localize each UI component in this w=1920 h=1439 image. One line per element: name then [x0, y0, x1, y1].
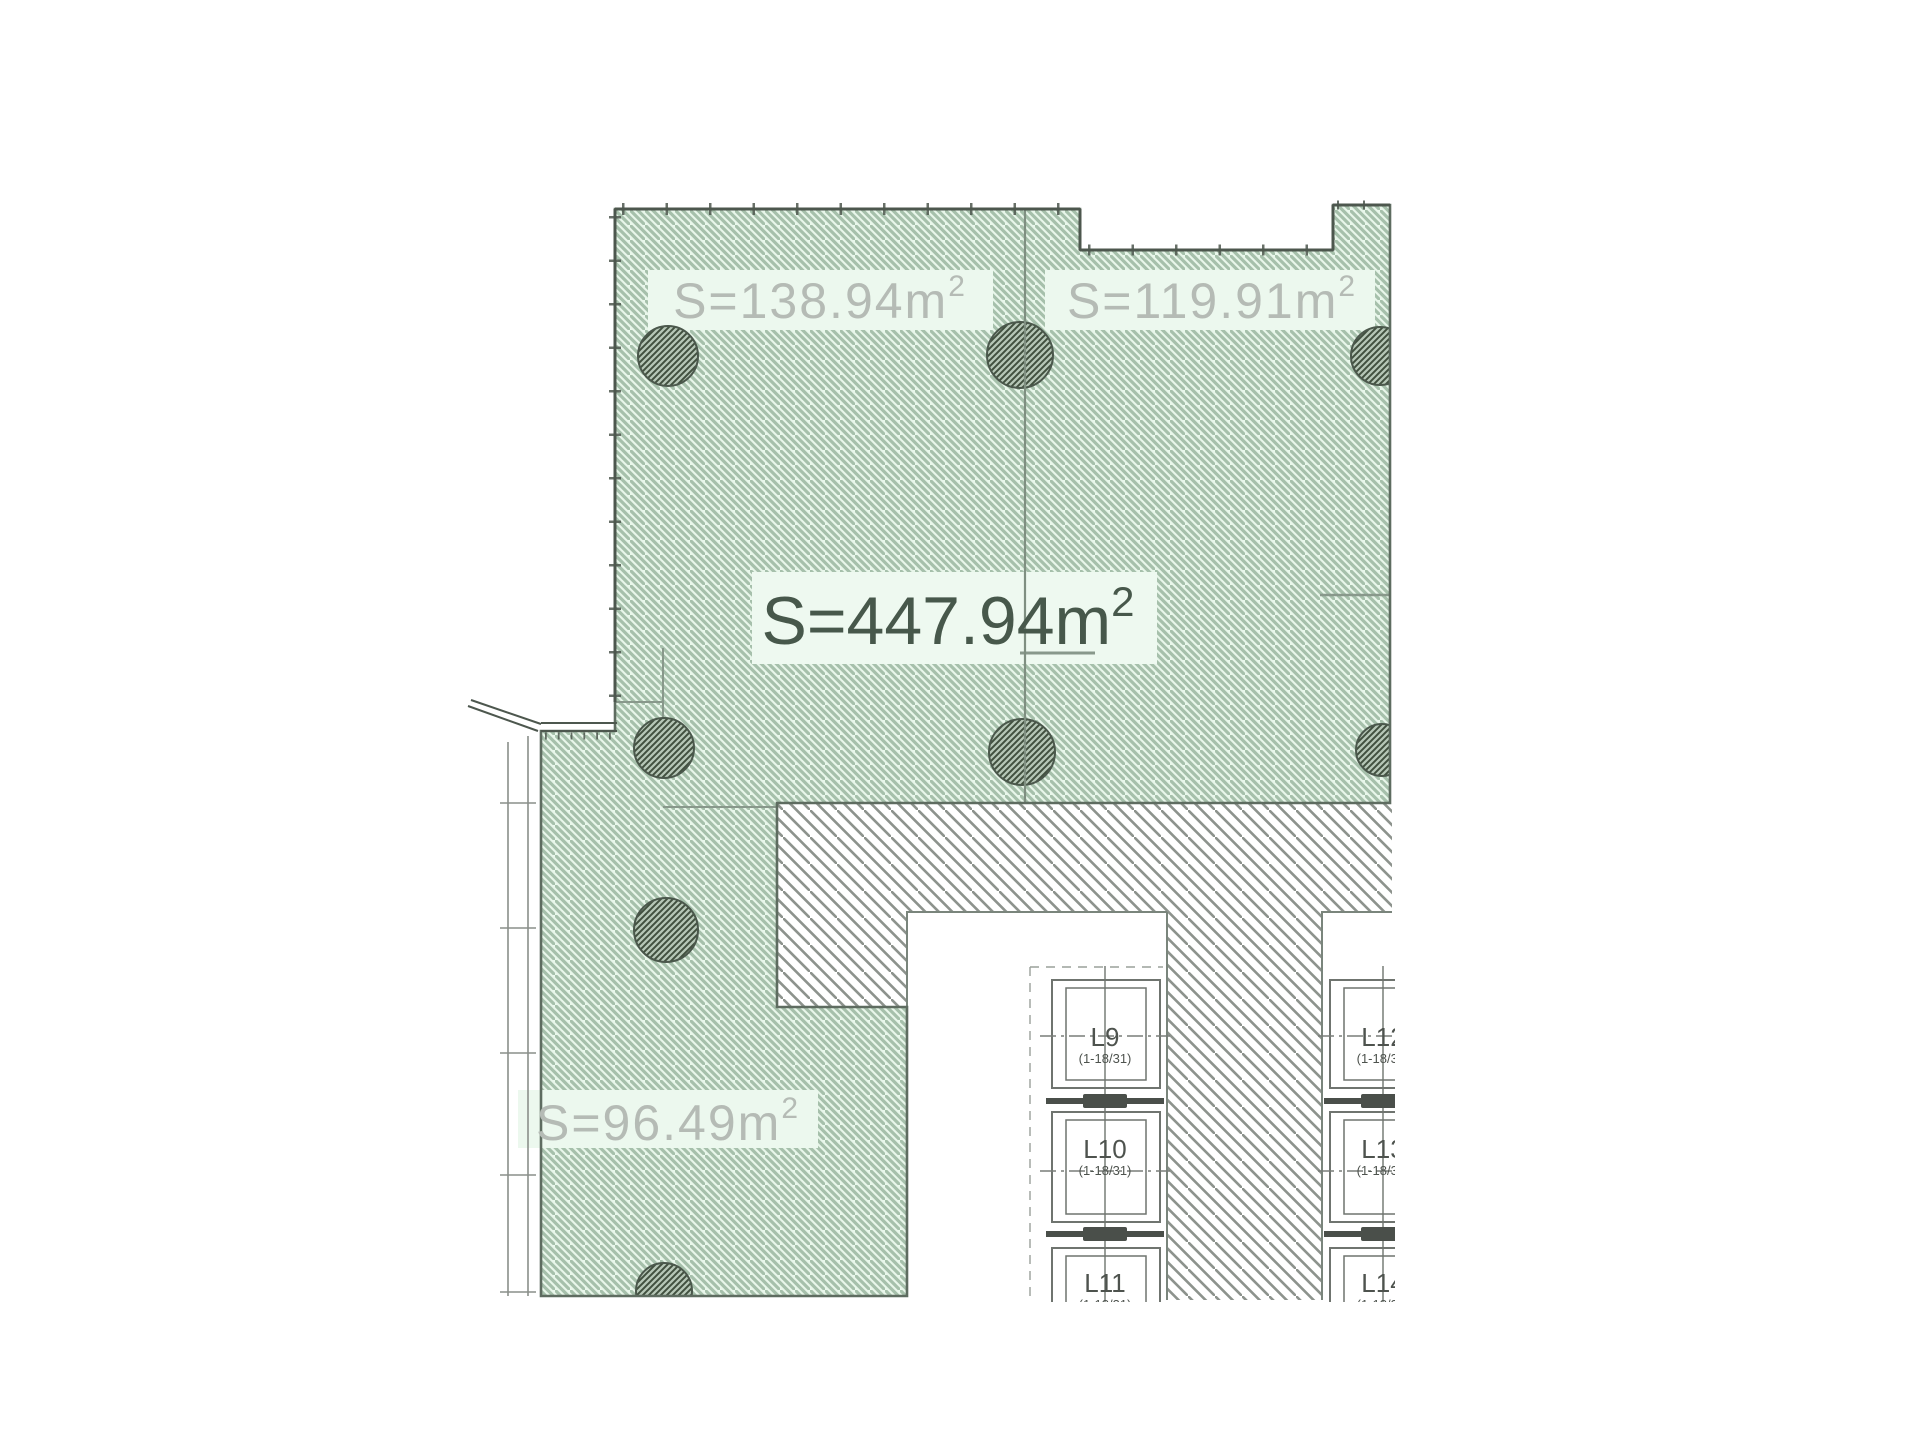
elevator-door-block [1083, 1227, 1127, 1241]
area-label-unit-a: S=138.94m2 [673, 270, 967, 329]
column-icon [1356, 724, 1408, 776]
corner-diagonal-wall [468, 700, 541, 731]
column-icon [634, 898, 698, 962]
area-label-total: S=447.94m2 [761, 578, 1134, 659]
elevator-shaft-L11 [1052, 1248, 1160, 1360]
elevator-range-L14: (1-18/31) [1357, 1297, 1410, 1312]
column-icon [989, 719, 1055, 785]
elevator-column-left: L9 (1-18/31) L10 (1-18/31) L11 (1-18/31) [1030, 966, 1170, 1360]
elevator-label-L14: L14 [1361, 1268, 1404, 1298]
elevator-label-L9: L9 [1091, 1022, 1120, 1052]
column-icon [1351, 327, 1409, 385]
elevator-range-L12: (1-18/31) [1357, 1051, 1410, 1066]
elevator-label-L10: L10 [1083, 1134, 1126, 1164]
column-icon [987, 322, 1053, 388]
area-label-unit-c: S=96.49m2 [536, 1092, 800, 1151]
left-dimension-strip [500, 736, 536, 1296]
floor-plan-canvas: L9 (1-18/31) L10 (1-18/31) L11 (1-18/31) [0, 0, 1920, 1439]
elevator-range-L13: (1-18/31) [1357, 1163, 1410, 1178]
elevator-range-L9: (1-18/31) [1079, 1051, 1132, 1066]
column-icon [636, 1263, 692, 1319]
elevator-column-right: L12 (1-18/31) L13 (1-18/31) L14 (1-18/31… [1318, 966, 1438, 1360]
elevator-door-block [1361, 1094, 1405, 1108]
elevator-door-block [1361, 1227, 1405, 1241]
elevator-label-L13: L13 [1361, 1134, 1404, 1164]
elevator-range-L10: (1-18/31) [1079, 1163, 1132, 1178]
column-icon [638, 326, 698, 386]
elevator-label-L12: L12 [1361, 1022, 1404, 1052]
elevator-range-L11: (1-18/31) [1079, 1297, 1132, 1312]
elevator-shaft-L14 [1330, 1248, 1438, 1360]
area-label-unit-b: S=119.91m2 [1067, 270, 1357, 329]
floor-plan-svg: L9 (1-18/31) L10 (1-18/31) L11 (1-18/31) [0, 0, 1920, 1439]
elevator-label-L11: L11 [1084, 1268, 1125, 1298]
column-icon [634, 718, 694, 778]
elevator-door-block [1083, 1094, 1127, 1108]
